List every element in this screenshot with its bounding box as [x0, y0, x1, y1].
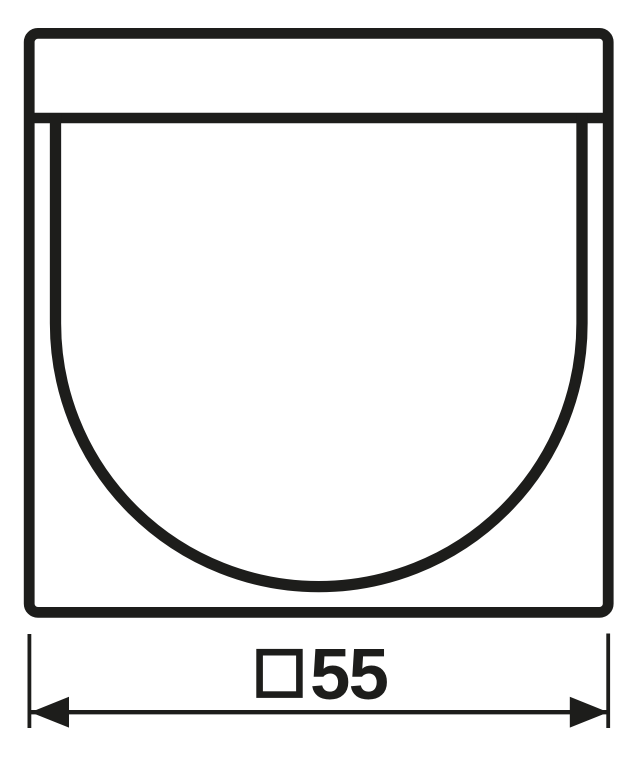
svg-text:5: 5: [349, 634, 389, 715]
svg-text:5: 5: [310, 634, 350, 715]
